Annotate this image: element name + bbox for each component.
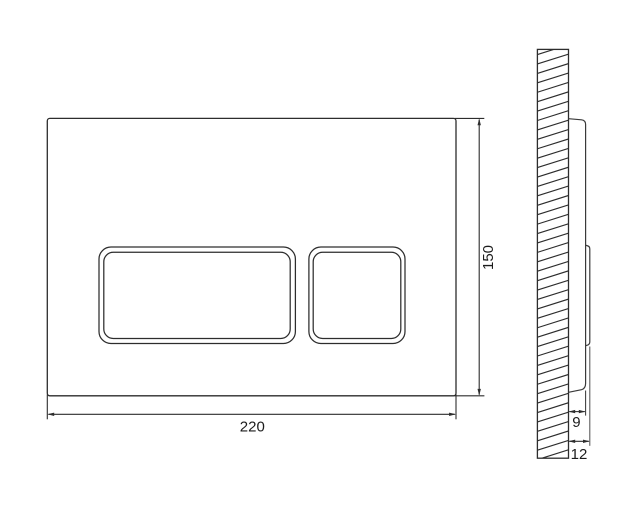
svg-text:220: 220: [240, 419, 265, 436]
svg-text:12: 12: [571, 446, 588, 463]
svg-text:150: 150: [480, 245, 497, 270]
svg-text:9: 9: [572, 414, 580, 431]
